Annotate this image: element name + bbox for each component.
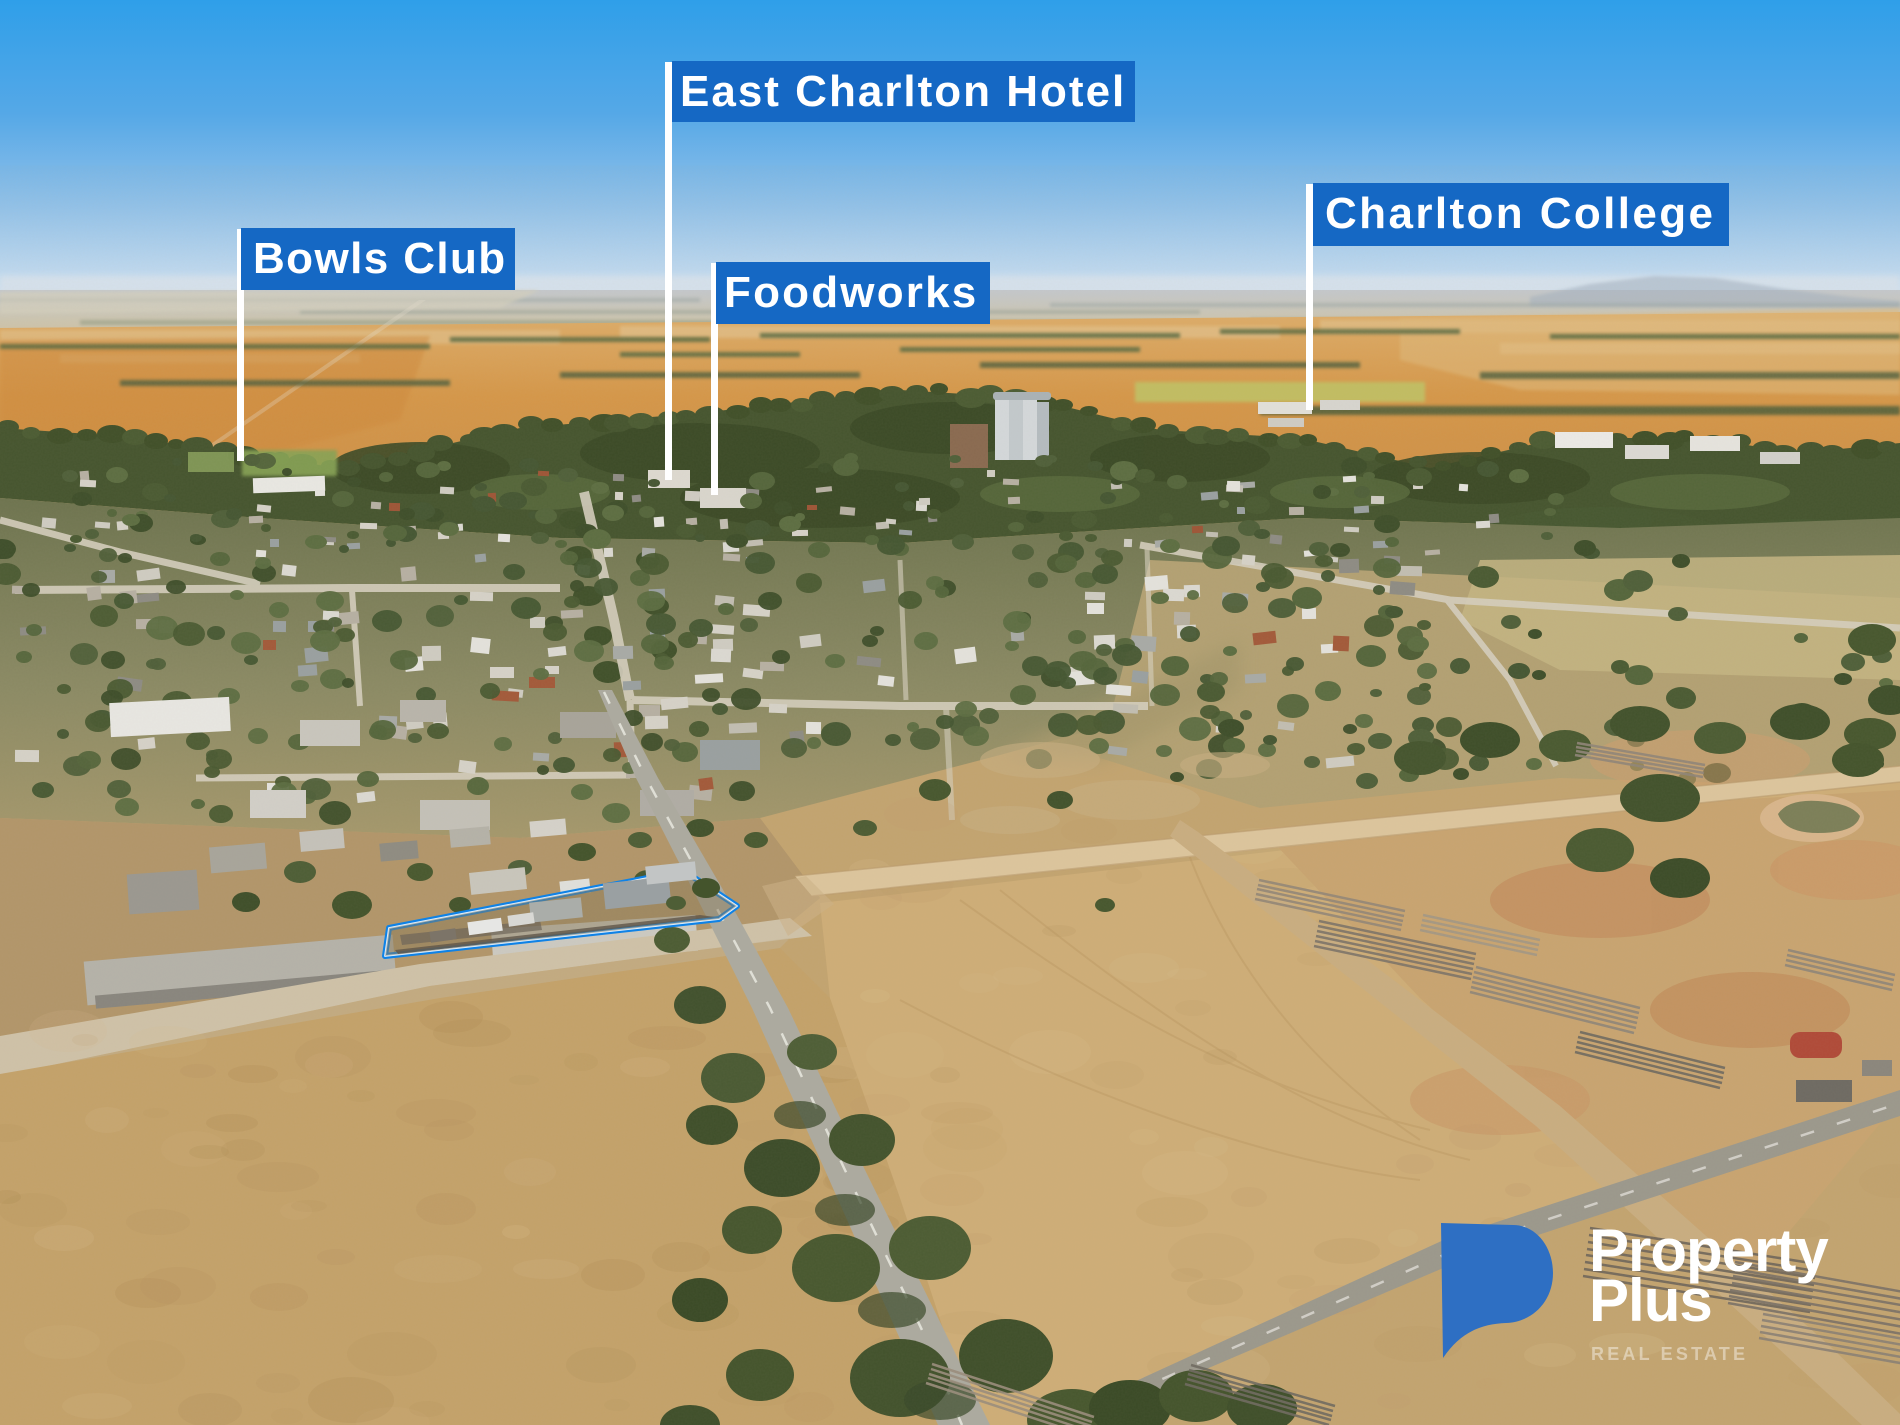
svg-text:Bowls Club: Bowls Club	[253, 234, 507, 283]
svg-text:Foodworks: Foodworks	[724, 268, 978, 317]
svg-text:East Charlton Hotel: East Charlton Hotel	[680, 67, 1126, 116]
svg-text:Plus: Plus	[1589, 1267, 1712, 1334]
svg-text:Charlton College: Charlton College	[1325, 189, 1715, 238]
svg-text:REAL ESTATE: REAL ESTATE	[1591, 1344, 1748, 1364]
